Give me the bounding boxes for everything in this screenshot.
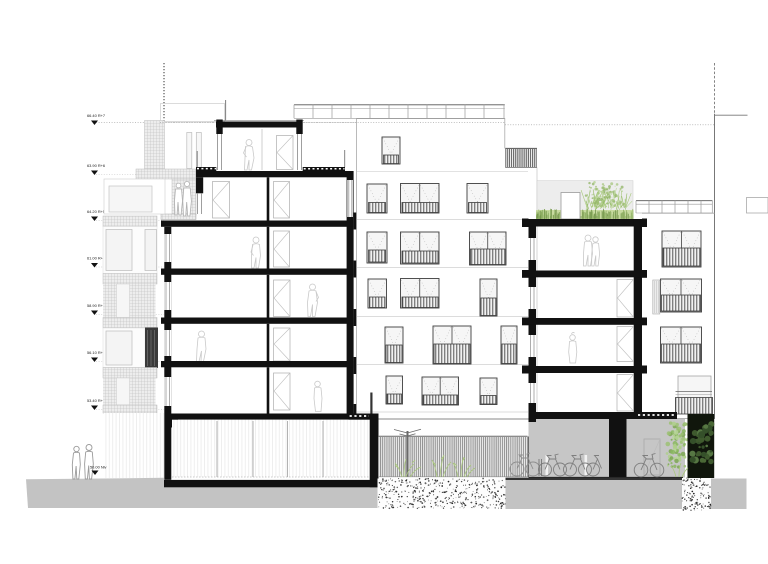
svg-text:66.40 R+7: 66.40 R+7 [87,113,105,118]
svg-text:58.90 R+3: 58.90 R+3 [87,303,105,308]
svg-text:53.40 R+1: 53.40 R+1 [87,398,105,403]
svg-text:63.90 R+6: 63.90 R+6 [87,163,105,168]
svg-text:56.10 R+2: 56.10 R+2 [87,350,105,355]
svg-text:50.00 Niv: 50.00 Niv [90,465,106,470]
svg-text:64.20 R+5: 64.20 R+5 [87,209,105,214]
